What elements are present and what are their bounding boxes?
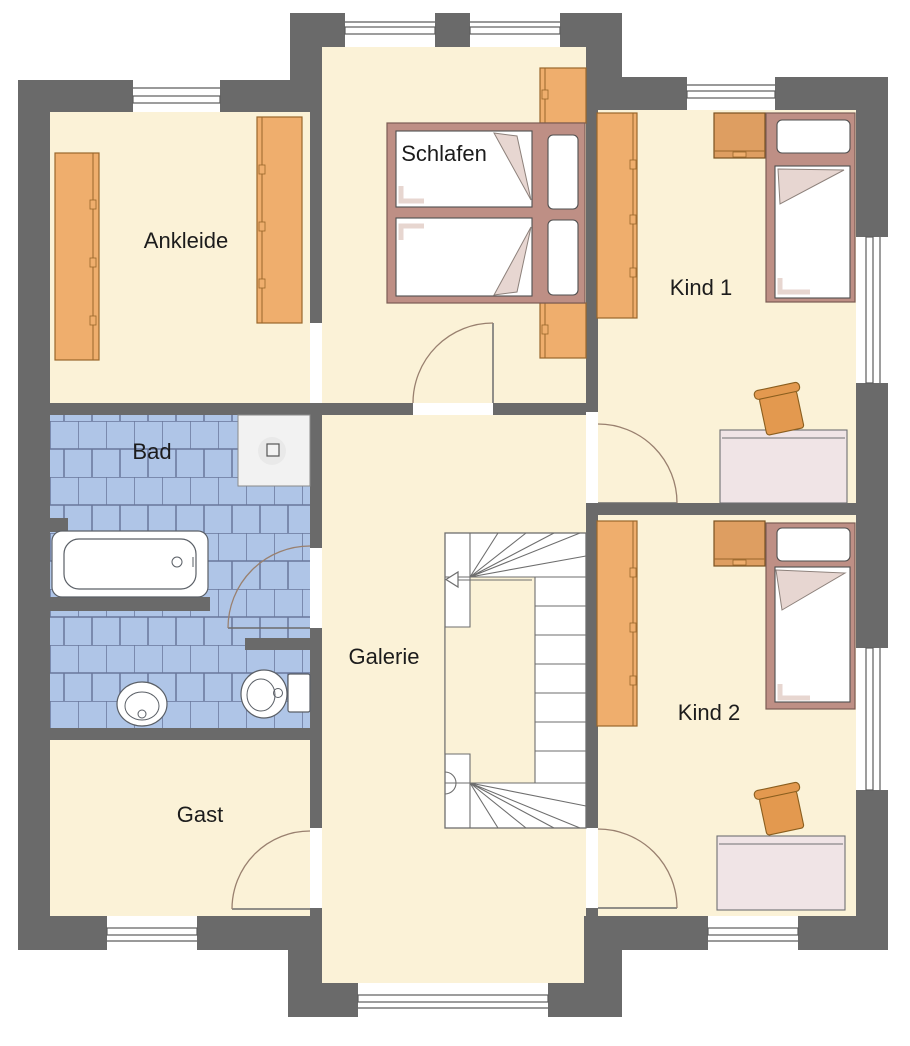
wall-bad-gast <box>50 728 310 740</box>
wall-gast-stub <box>310 908 322 916</box>
threshold-schlafen-door <box>413 403 493 415</box>
threshold-kind2-door <box>586 828 598 908</box>
window-kind1-top <box>687 77 775 110</box>
passage-ankleide-schlafen <box>310 323 322 403</box>
window-kind2-right <box>856 648 888 790</box>
room-gast-floor <box>50 740 310 916</box>
wardrobe-schlafen-bottom <box>540 303 586 358</box>
wardrobe-kind1 <box>597 113 637 318</box>
room-label-gast: Gast <box>177 802 223 827</box>
desk-kind1 <box>720 430 847 503</box>
window-schlafen-top-right <box>470 13 560 47</box>
window-kind1-right <box>856 237 888 383</box>
threshold-kind1-door <box>586 412 598 503</box>
nightstand-kind1 <box>714 113 765 158</box>
bathtub <box>52 531 208 597</box>
wardrobe-ankleide-left <box>55 153 99 360</box>
wardrobe-kind2 <box>597 521 637 726</box>
desk-kind2 <box>717 836 845 910</box>
shower <box>238 415 310 486</box>
wall-bad-galerie-upper <box>310 415 322 548</box>
wall-bad-galerie-lower <box>310 628 322 740</box>
pillow <box>777 528 850 561</box>
nightstand-kind2 <box>714 521 765 566</box>
wall-center-right-lower <box>584 916 622 1017</box>
room-label-schlafen: Schlafen <box>401 141 487 166</box>
wall-tub-stub-top <box>50 518 68 532</box>
floor-plan: Schlafen Ankleide Kind 1 Bad Galerie Kin… <box>0 0 910 1046</box>
window-gast-bottom <box>107 916 197 950</box>
pillow <box>777 120 850 153</box>
wall-center-top <box>290 13 622 47</box>
threshold-bad-door <box>310 548 322 628</box>
room-label-kind1: Kind 1 <box>670 275 732 300</box>
window-schlafen-top-left <box>345 13 435 47</box>
wall-exterior-left <box>18 80 50 950</box>
room-label-ankleide: Ankleide <box>144 228 228 253</box>
wall-kind1-kind2 <box>586 503 856 515</box>
wall-wc-partition <box>245 638 310 650</box>
wall-exterior-right <box>856 77 888 950</box>
shower-drain-icon <box>267 444 279 456</box>
staircase <box>445 533 586 828</box>
window-galerie-bottom <box>358 983 548 1017</box>
wall-kind2-stub <box>586 908 598 916</box>
threshold-gast-door <box>310 828 322 908</box>
pillow <box>548 220 578 295</box>
toilet <box>241 670 310 718</box>
wall-schlafen-kind1 <box>586 47 598 412</box>
bed-kind2 <box>766 523 855 709</box>
room-label-bad: Bad <box>132 439 171 464</box>
wall-gast-galerie <box>310 740 322 828</box>
room-label-galerie: Galerie <box>349 644 420 669</box>
sink <box>117 682 167 726</box>
wall-tub-stub-bottom <box>50 597 210 611</box>
wardrobe-ankleide-right <box>257 117 302 323</box>
room-label-kind2: Kind 2 <box>678 700 740 725</box>
wall-schlafen-galerie <box>493 403 586 415</box>
pillow <box>548 135 578 209</box>
wall-ankleide-schlafen <box>310 112 322 323</box>
window-kind2-bottom <box>708 916 798 950</box>
window-ankleide-top <box>133 80 220 112</box>
wall-galerie-kind2 <box>586 515 598 828</box>
wall-ankleide-bad <box>50 403 413 415</box>
bed-kind1 <box>766 113 855 302</box>
wardrobe-schlafen-top <box>540 68 586 123</box>
